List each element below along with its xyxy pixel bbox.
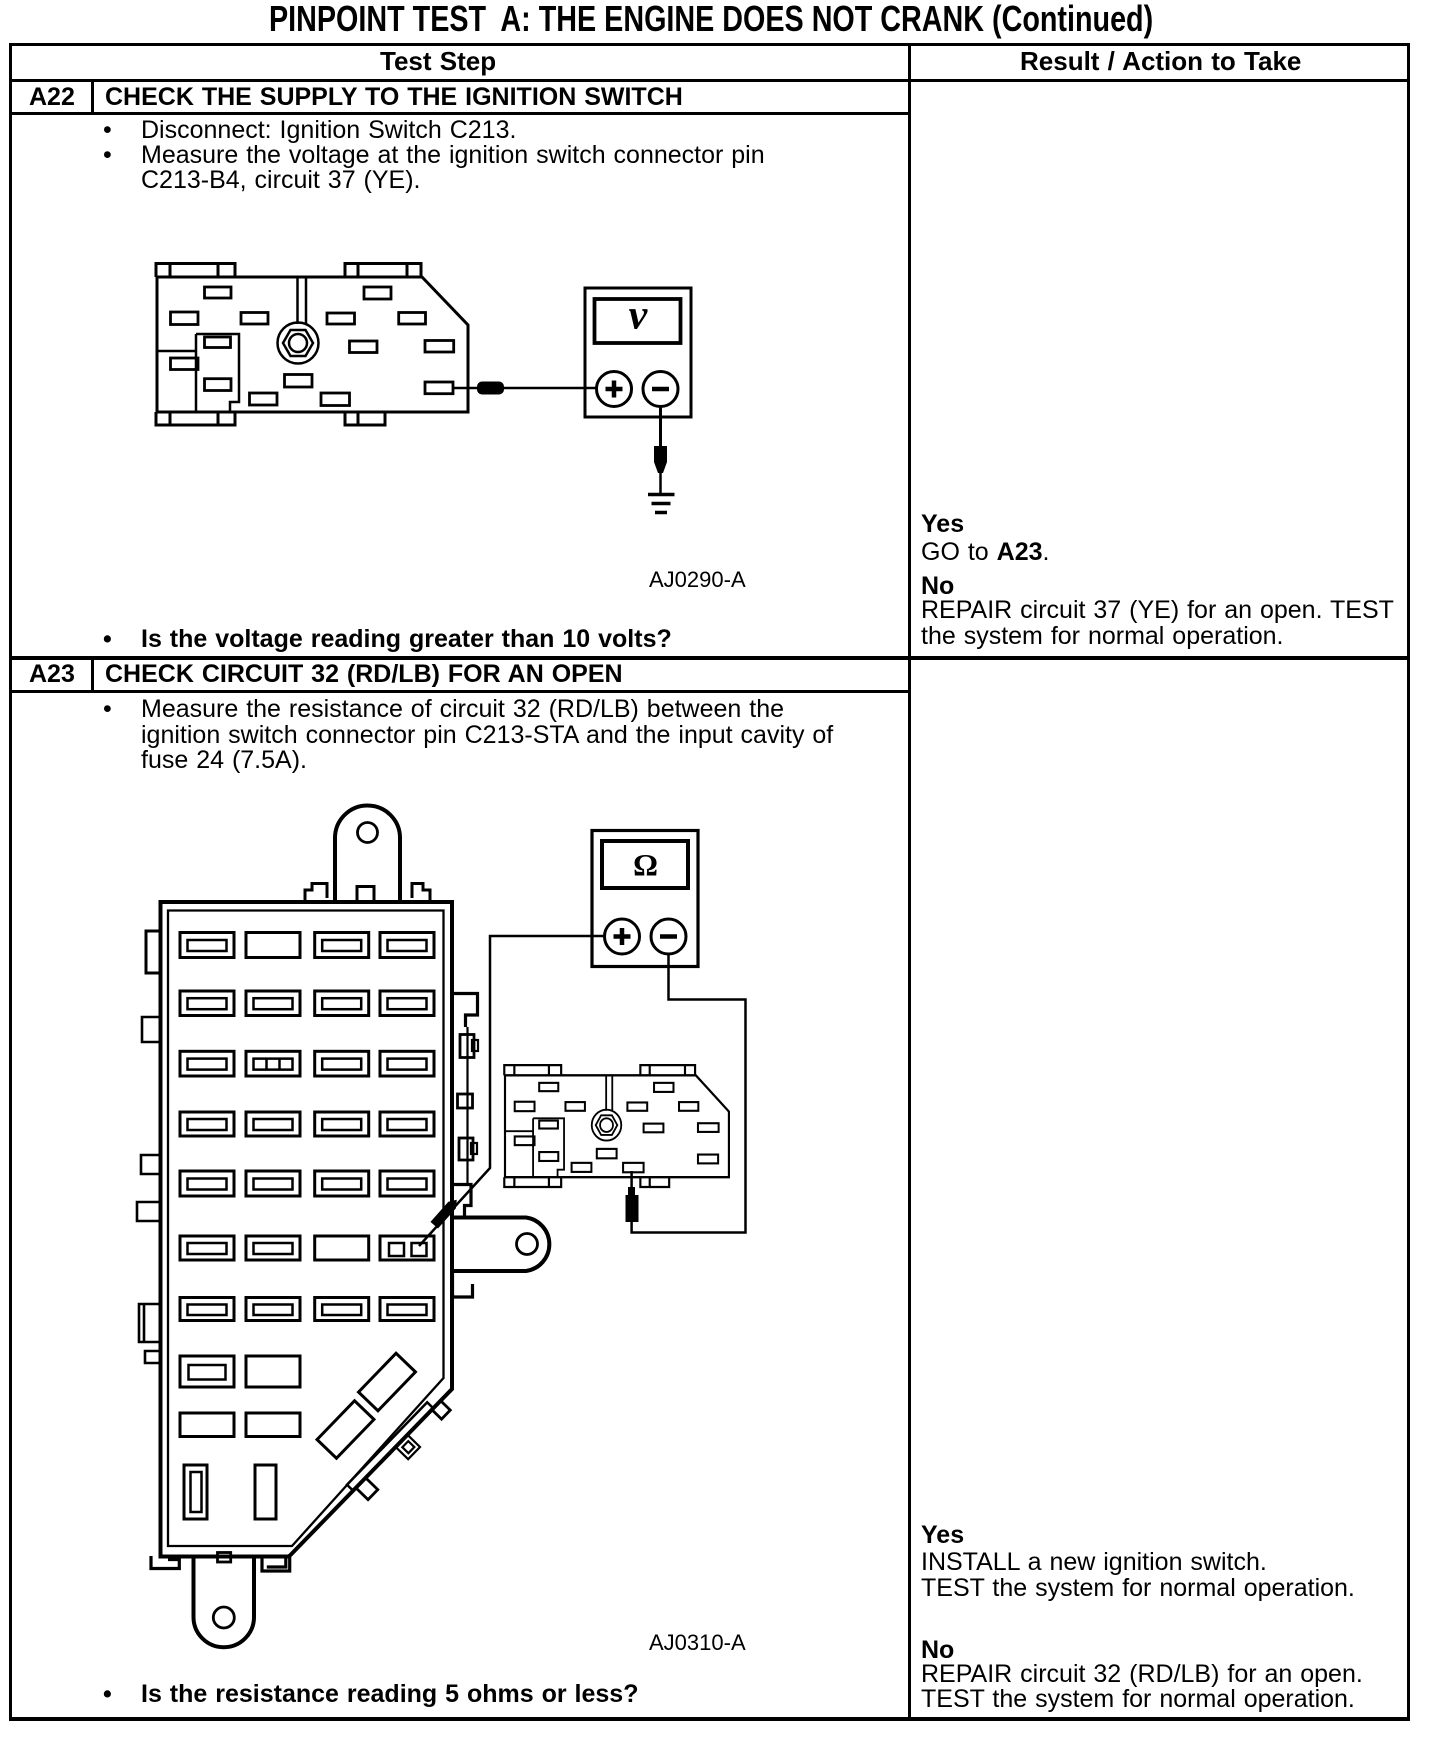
- svg-text:ν: ν: [629, 293, 649, 339]
- svg-text:Ω: Ω: [633, 847, 658, 882]
